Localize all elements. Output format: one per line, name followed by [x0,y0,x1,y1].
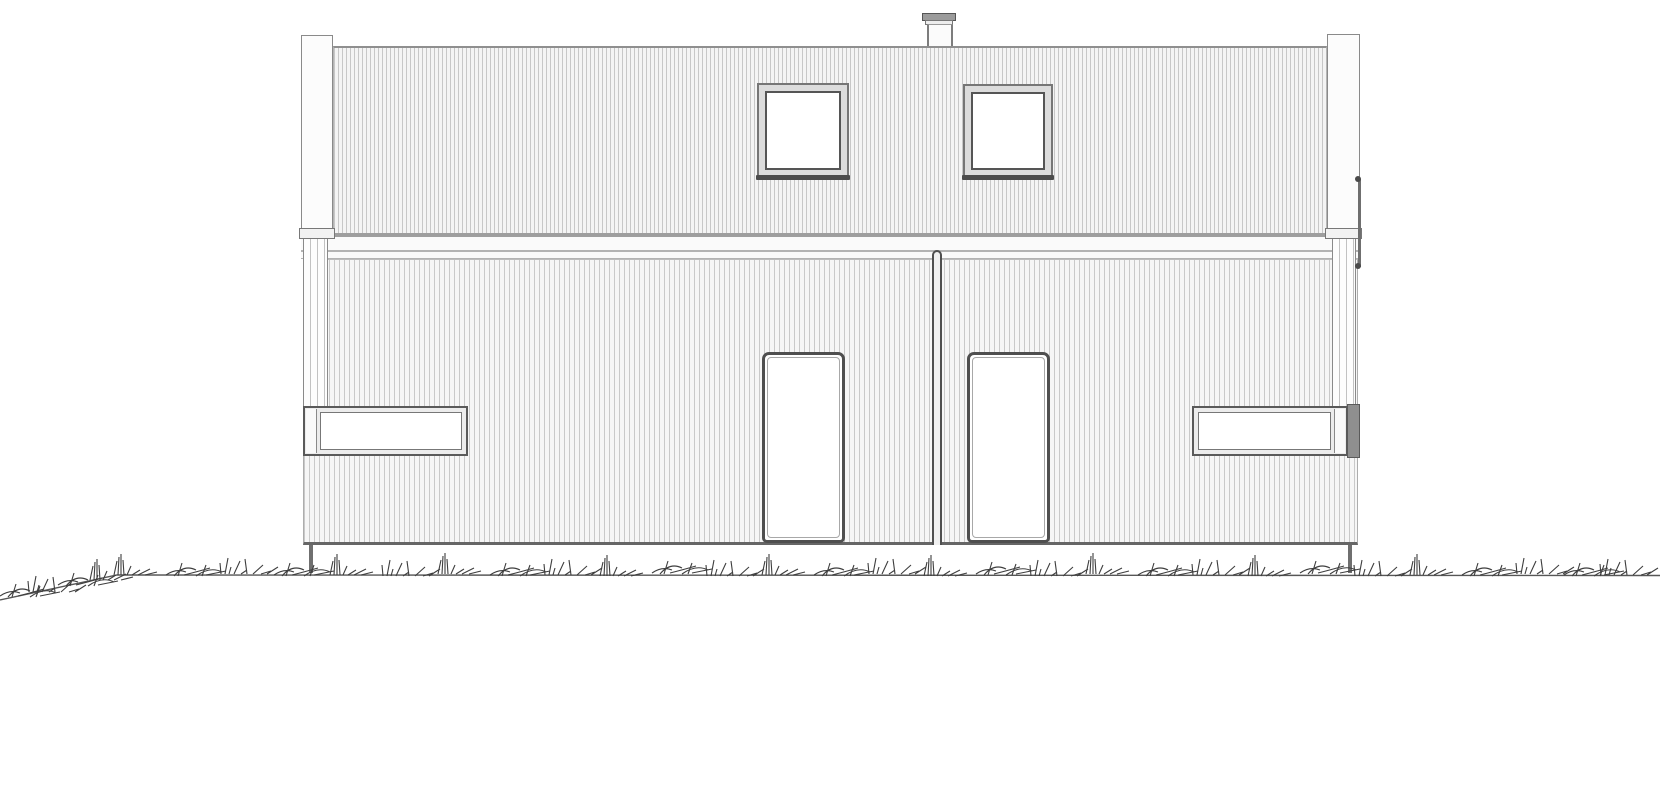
right-edge-pipe [1358,179,1361,267]
attic-window-left-glass [765,91,841,170]
strip-window-left-glass [320,412,462,450]
attic-window-right [963,84,1053,178]
chimney-body [927,24,953,46]
entrance-door-left [762,352,845,543]
corner-board-left [301,35,333,229]
attic-window-left [757,83,849,178]
floor-trim-band [301,237,1360,259]
pipe-fitting-top [1355,176,1361,182]
party-wall-joint [932,250,942,545]
trim-band-line [301,250,1360,252]
entrance-door-right [967,352,1050,543]
corner-board-right [1327,34,1360,229]
entrance-door-right-panel [972,357,1045,538]
strip-window-right-glass [1198,412,1331,450]
downspout-bracket-left [299,228,335,239]
downspout-left [303,239,328,407]
strip-window-left-endcap [306,409,317,453]
elevation-canvas: Architectural front elevation drawing of… [0,0,1670,800]
entrance-door-left-panel [767,357,840,538]
downspout-right [1332,239,1356,407]
strip-window-left [303,406,468,456]
strip-window-right-endcap [1334,409,1345,453]
drawing-title: Architectural front elevation drawing of… [0,0,1,1]
downspout-shadow-strip [1347,404,1360,458]
ground-grass-line [0,540,1670,620]
strip-window-right [1192,406,1348,456]
downspout-bracket-right [1325,228,1362,239]
attic-window-right-glass [971,92,1045,170]
pipe-fitting-bottom [1355,263,1361,269]
